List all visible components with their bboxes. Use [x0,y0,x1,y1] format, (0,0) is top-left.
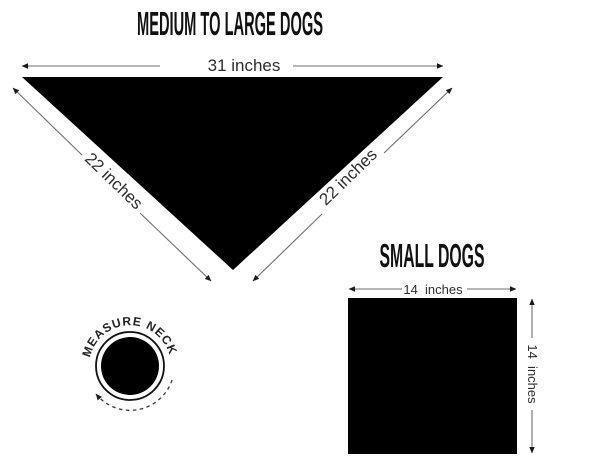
size-diagram: MEDIUM TO LARGE DOGS 31 inches 22 inches… [0,0,600,463]
bandana-square-shape [348,298,517,454]
measure-neck-badge: MEASURE NECK [79,314,180,410]
triangle-width-label: 31 inches [208,56,281,75]
small-dogs-title: SMALL DOGS [380,237,485,274]
bandana-size-chart: MEDIUM TO LARGE DOGS 31 inches 22 inches… [0,0,600,463]
square-height-label: 14 inches [525,344,540,404]
medium-large-title: MEDIUM TO LARGE DOGS [137,5,323,42]
badge-neck-circle [101,337,159,395]
square-width-label: 14 inches [403,282,463,297]
